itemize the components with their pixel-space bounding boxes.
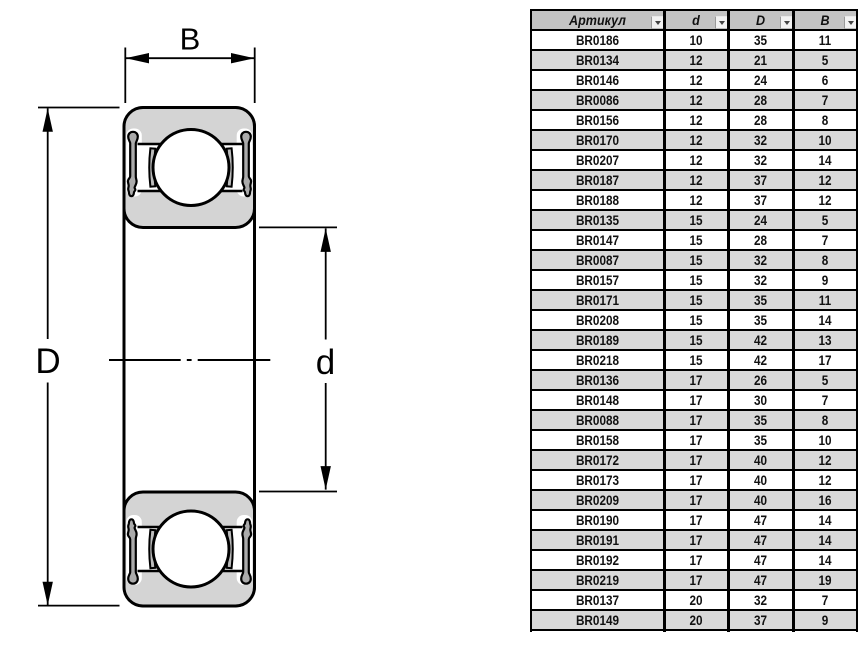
svg-text:d: d xyxy=(316,343,335,382)
svg-text:B: B xyxy=(180,22,201,57)
svg-text:D: D xyxy=(35,342,60,381)
